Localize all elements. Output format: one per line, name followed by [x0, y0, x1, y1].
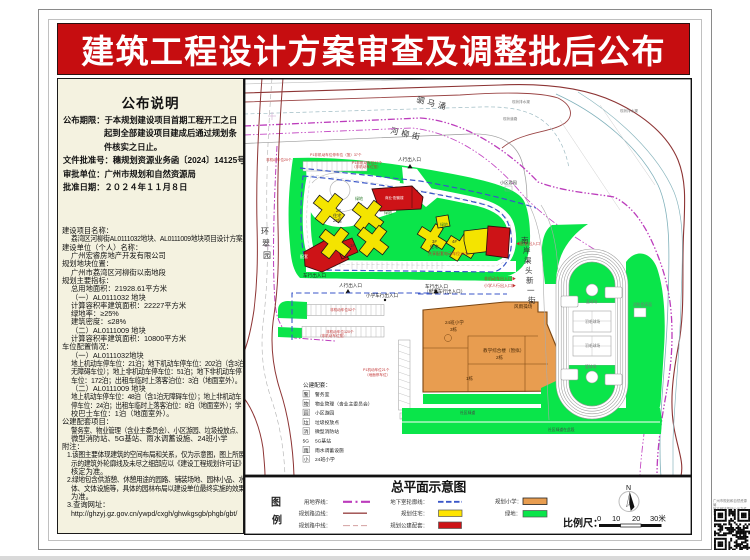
svg-text:商业·配套楼: 商业·配套楼 — [385, 195, 404, 200]
svg-text:P1非机动车位停车位（笼）37个: P1非机动车位停车位（笼）37个 — [310, 152, 362, 157]
svg-text:人行出入口: 人行出入口 — [339, 282, 362, 289]
svg-text:物业管理（含业主委员会）: 物业管理（含业主委员会） — [315, 400, 373, 407]
svg-text:2栋: 2栋 — [496, 354, 504, 361]
svg-text:社区绿道: 社区绿道 — [460, 410, 475, 415]
svg-text:规划小学：: 规划小学： — [495, 498, 522, 506]
svg-text:N: N — [626, 485, 631, 492]
svg-text:人行出入口: 人行出入口 — [398, 156, 421, 163]
svg-text:消防登高面: 消防登高面 — [633, 302, 652, 307]
svg-text:教学综合楼（暂拟）: 教学综合楼（暂拟） — [483, 347, 524, 354]
svg-text:环: 环 — [261, 227, 269, 236]
svg-text:1#: 1# — [350, 243, 355, 248]
svg-text:绿地：: 绿地： — [505, 510, 521, 518]
svg-text:街: 街 — [528, 295, 536, 305]
svg-text:现状道路: 现状道路 — [503, 116, 518, 121]
svg-text:总平面示意图: 总平面示意图 — [391, 480, 466, 495]
svg-text:警务室: 警务室 — [315, 391, 330, 398]
svg-text:小学人行出入口▶: 小学人行出入口▶ — [484, 282, 516, 288]
svg-text:园: 园 — [304, 411, 309, 417]
svg-text:羽毛球场: 羽毛球场 — [585, 343, 600, 348]
svg-text:垃圾投放点: 垃圾投放点 — [315, 419, 339, 426]
svg-text:羽毛球场: 羽毛球场 — [585, 319, 600, 324]
svg-text:翠: 翠 — [262, 239, 270, 248]
svg-text:新: 新 — [526, 275, 534, 285]
svg-text:（非机动车位笼）: （非机动车位笼） — [352, 164, 381, 169]
svg-text:5G基站: 5G基站 — [315, 438, 331, 445]
svg-text:微型消防站: 微型消防站 — [315, 428, 339, 435]
svg-text:3栋: 3栋 — [450, 326, 458, 333]
svg-text:篮球场: 篮球场 — [586, 299, 598, 304]
svg-text:20: 20 — [632, 514, 640, 523]
svg-text:篮球场: 篮球场 — [585, 364, 597, 369]
svg-text:警: 警 — [304, 391, 309, 398]
svg-text:物: 物 — [304, 400, 309, 407]
svg-text:岸: 岸 — [523, 246, 531, 255]
svg-text:社区绿道在此段: 社区绿道在此段 — [548, 427, 575, 432]
svg-text:绿地: 绿地 — [440, 221, 448, 227]
svg-text:住宅: 住宅 — [430, 243, 438, 249]
svg-text:现状排水渠: 现状排水渠 — [512, 99, 530, 104]
svg-text:小: 小 — [304, 456, 309, 463]
svg-text:4#: 4# — [452, 239, 457, 244]
svg-text:（地面停车位）: （地面停车位） — [365, 372, 390, 377]
svg-text:一: 一 — [527, 286, 535, 295]
svg-text:现状排水渠: 现状排水渠 — [620, 108, 638, 113]
svg-text:地下室轮廓线：: 地下室轮廓线： — [390, 498, 428, 506]
svg-text:绿地: 绿地 — [384, 209, 392, 215]
svg-text:垃: 垃 — [304, 419, 309, 426]
svg-text:非机动车位52个: 非机动车位52个 — [330, 307, 356, 312]
svg-text:非机动车出入口▶: 非机动车出入口▶ — [484, 275, 516, 281]
svg-text:规划公建配套：: 规划公建配套： — [390, 522, 428, 530]
svg-text:共享配套电动车位16个: 共享配套电动车位16个 — [428, 250, 468, 256]
svg-text:园: 园 — [263, 251, 271, 260]
svg-text:1栋: 1栋 — [466, 375, 474, 382]
svg-text:用地界线：: 用地界线： — [304, 498, 331, 506]
svg-text:雨: 雨 — [304, 448, 309, 454]
svg-text:P1机动车位21个: P1机动车位21个 — [363, 367, 390, 372]
svg-text:规划路边线：: 规划路边线： — [299, 510, 331, 518]
svg-text:头: 头 — [525, 265, 533, 275]
svg-text:小区游园: 小区游园 — [315, 410, 334, 417]
svg-text:例: 例 — [272, 514, 282, 527]
svg-text:公建配套：: 公建配套： — [303, 381, 331, 389]
svg-text:雨水调蓄设施: 雨水调蓄设施 — [315, 447, 344, 454]
svg-text:非机动车位20个: 非机动车位20个 — [266, 157, 292, 162]
svg-text:10: 10 — [612, 514, 620, 523]
svg-text:规划住宅：: 规划住宅： — [401, 510, 428, 518]
svg-text:渠: 渠 — [524, 255, 532, 265]
svg-text:24班小学: 24班小学 — [445, 319, 464, 326]
svg-text:24班小学: 24班小学 — [315, 456, 335, 463]
svg-text:南: 南 — [521, 235, 529, 245]
svg-text:配套: 配套 — [300, 253, 308, 259]
svg-text:30米: 30米 — [650, 513, 666, 523]
svg-text:消: 消 — [304, 428, 309, 435]
svg-text:绿地: 绿地 — [355, 195, 363, 201]
svg-text:5G: 5G — [303, 439, 310, 445]
svg-text:0: 0 — [597, 514, 601, 523]
svg-text:（非机动车位笼）: （非机动车位笼） — [318, 333, 347, 338]
svg-text:图: 图 — [271, 497, 281, 509]
svg-text:小区游园: 小区游园 — [500, 179, 517, 186]
svg-text:车行出入口: 车行出入口 — [303, 272, 326, 279]
svg-text:规划路中线：: 规划路中线： — [299, 522, 331, 530]
